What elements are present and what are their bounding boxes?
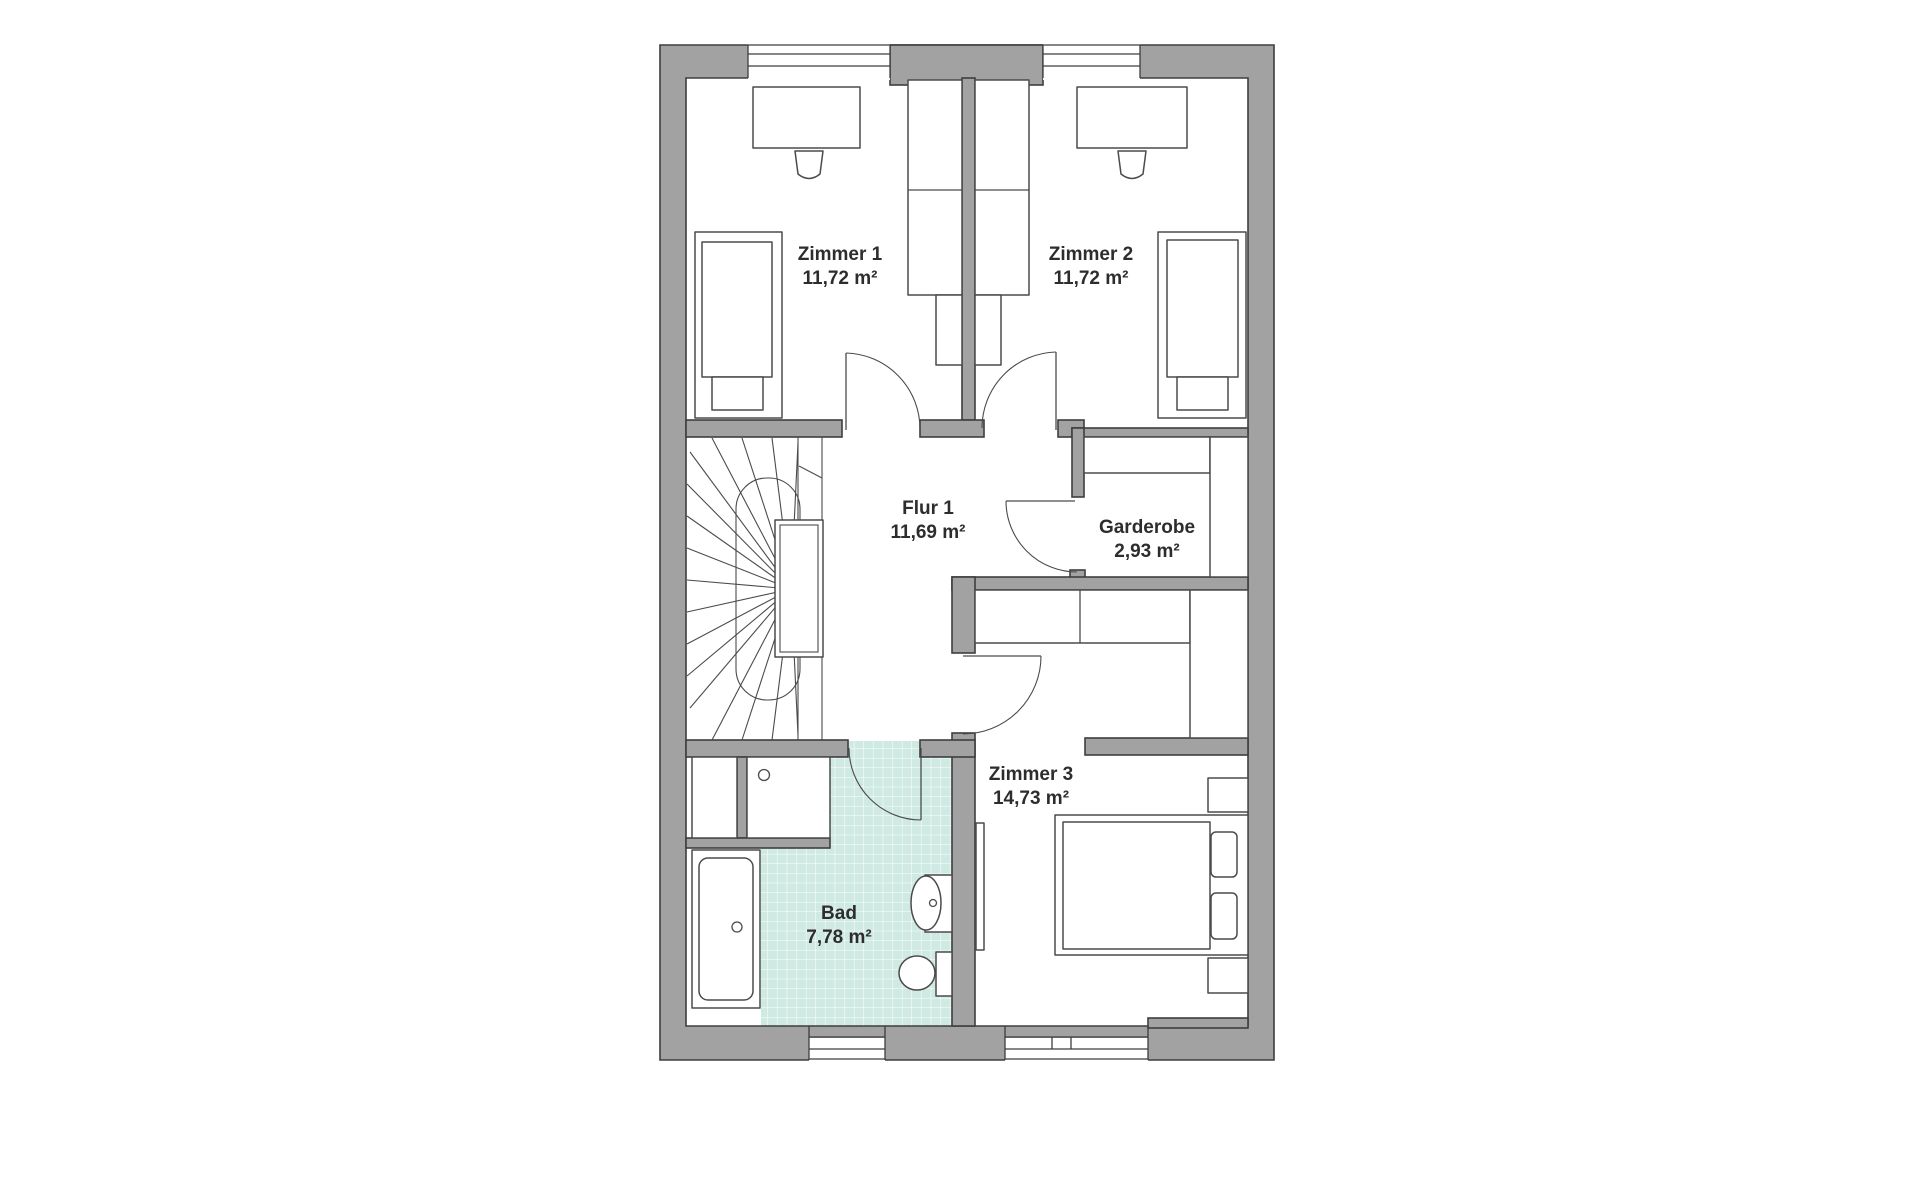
zimmer1-chair (795, 151, 823, 179)
wall-garderobe-left (1072, 428, 1084, 497)
zimmer1-bed-mattress (702, 242, 772, 377)
zimmer1-cabinet (936, 295, 962, 365)
flur1-name: Flur 1 (902, 498, 954, 519)
wall-garderobe-top (1072, 428, 1248, 437)
bad-bathtub-inner (699, 858, 753, 1000)
zimmer2-area: 11,72 m² (1054, 268, 1129, 289)
door-zimmer3 (963, 656, 1041, 734)
door-zimmer1 (846, 353, 920, 430)
floorplan-canvas: Zimmer 1 11,72 m² Zimmer 2 11,72 m² Flur… (0, 0, 1920, 1200)
room-label-zimmer2: Zimmer 2 11,72 m² (1049, 244, 1133, 289)
stair-well-railing (775, 520, 823, 657)
zimmer1-area: 11,72 m² (803, 268, 878, 289)
garderobe-name: Garderobe (1099, 517, 1195, 538)
wall-zimmer1-south (686, 420, 842, 437)
zimmer1-name: Zimmer 1 (798, 244, 883, 265)
zimmer2-chair (1118, 151, 1146, 179)
stairs (687, 437, 823, 740)
bad-shower (747, 757, 830, 838)
bottom-right-wall-step (1148, 1018, 1248, 1028)
bad-area: 7,78 m² (806, 927, 871, 948)
zimmer1-desk (753, 87, 860, 148)
zimmer1-bed-foot (712, 377, 763, 410)
zimmer3-pillow-bottom (1211, 893, 1237, 939)
wall-flur-zimmer3-upper (952, 577, 975, 653)
wall-bad-divider-horizontal (686, 838, 830, 848)
wall-bad-zimmer3 (952, 733, 975, 1026)
room-label-flur1: Flur 1 11,69 m² (891, 498, 966, 543)
zimmer2-bed-foot (1177, 377, 1228, 410)
window-top-zimmer1 (748, 43, 890, 80)
wall-bad-top-right (920, 740, 975, 757)
flur1-area: 11,69 m² (891, 522, 966, 543)
zimmer2-wardrobe (975, 80, 1029, 295)
garderobe-closet-right (1210, 437, 1248, 577)
zimmer3-bed-mattress (1063, 822, 1210, 949)
zimmer3-nightstand-bottom (1208, 958, 1248, 993)
bad-name: Bad (821, 903, 857, 924)
zimmer3-area: 14,73 m² (993, 788, 1069, 809)
zimmer3-pillow-top (1211, 832, 1237, 877)
wall-center-foot (920, 420, 984, 437)
floorplan-drawing: Zimmer 1 11,72 m² Zimmer 2 11,72 m² Flur… (0, 0, 1920, 1200)
wall-garderobe-bottom (952, 577, 1248, 590)
zimmer2-bed-mattress (1167, 240, 1238, 377)
bad-cabinet (692, 757, 737, 838)
window-top-zimmer2 (1043, 43, 1140, 80)
wall-bad-divider-vertical (737, 757, 747, 838)
zimmer3-nightstand-top (1208, 778, 1248, 812)
room-label-garderobe: Garderobe 2,93 m² (1099, 517, 1195, 562)
garderobe-area: 2,93 m² (1114, 541, 1179, 562)
bad-toilet-bowl (899, 956, 935, 990)
zimmer2-desk (1077, 87, 1187, 148)
zimmer3-closet-top (975, 590, 1190, 643)
door-garderobe (1006, 501, 1077, 572)
wall-stairs-bottom (686, 740, 848, 757)
zimmer3-radiator (976, 823, 984, 950)
room-label-zimmer1: Zimmer 1 11,72 m² (798, 244, 883, 289)
wall-zimmer3-top (1085, 738, 1248, 755)
zimmer3-name: Zimmer 3 (989, 764, 1073, 785)
zimmer2-name: Zimmer 2 (1049, 244, 1133, 265)
garderobe-closet-top (1084, 437, 1210, 473)
wall-zimmer1-zimmer2 (962, 78, 975, 420)
bad-toilet-cistern (936, 952, 952, 996)
zimmer3-closet-right (1190, 590, 1248, 738)
zimmer1-wardrobe (908, 80, 962, 295)
room-label-zimmer3: Zimmer 3 14,73 m² (989, 764, 1073, 809)
zimmer2-cabinet (975, 295, 1001, 365)
